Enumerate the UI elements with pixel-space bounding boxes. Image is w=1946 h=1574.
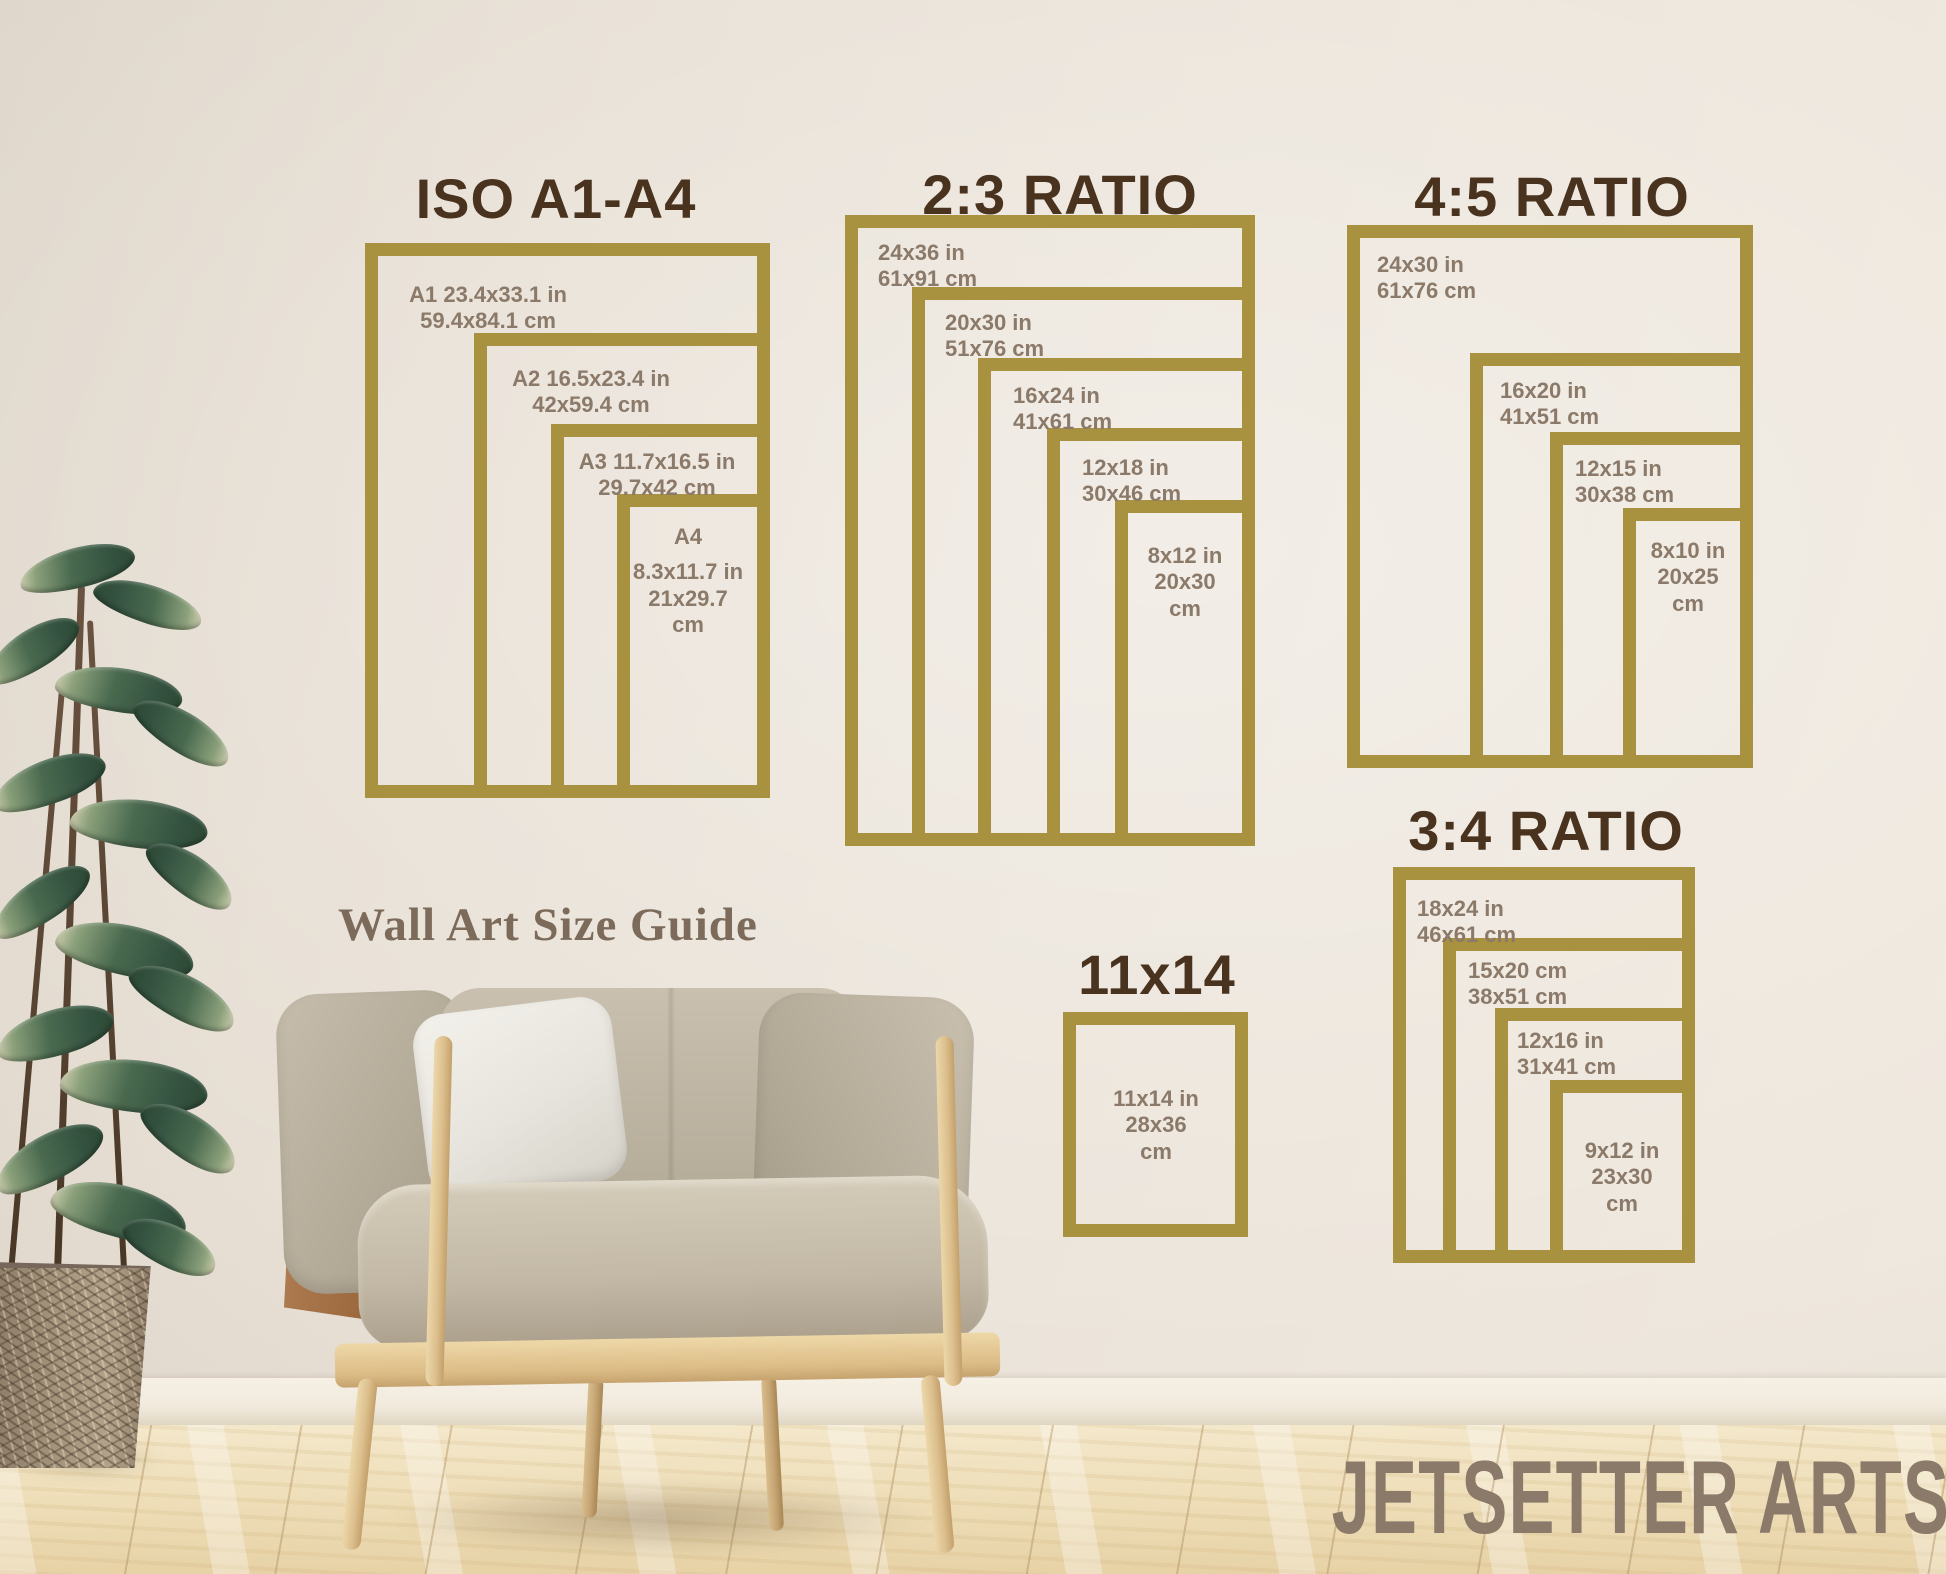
label-line: 12x15 in <box>1575 456 1674 482</box>
label-line: cm <box>1558 591 1818 617</box>
frame-label-12x16: 12x16 in 31x41 cm <box>1517 1028 1616 1081</box>
section-title-4-5: 4:5 RATIO <box>1302 166 1802 228</box>
frame-label-16x20: 16x20 in 41x51 cm <box>1500 378 1599 431</box>
label-line: 15x20 cm <box>1468 958 1567 984</box>
frame-label-a2: A2 16.5x23.4 in 42x59.4 cm <box>461 366 721 419</box>
section-title-11x14: 11x14 <box>907 944 1407 1006</box>
label-line: 20x25 <box>1558 564 1818 590</box>
plant-pot <box>0 1262 154 1468</box>
label-line: 9x12 in <box>1492 1138 1752 1164</box>
chair-shadow <box>290 1468 1030 1568</box>
label-line: 8.3x11.7 in <box>558 559 818 585</box>
frame-label-18x24: 18x24 in 46x61 cm <box>1417 896 1516 949</box>
frame-label-a3: A3 11.7x16.5 in 29.7x42 cm <box>527 449 787 502</box>
frame-label-11x14: 11x14 in 28x36 cm <box>1026 1086 1286 1165</box>
label-line: 41x61 cm <box>1013 409 1112 435</box>
frame-label-a1: A1 23.4x33.1 in 59.4x84.1 cm <box>358 282 618 335</box>
room-scene: Wall Art Size Guide ISO A1-A4 A1 23.4x33… <box>0 0 1946 1574</box>
label-line: 59.4x84.1 cm <box>358 308 618 334</box>
label-line: 16x24 in <box>1013 383 1112 409</box>
frame-label-8x10: 8x10 in 20x25 cm <box>1558 538 1818 617</box>
frame-label-12x18: 12x18 in 30x46 cm <box>1082 455 1181 508</box>
label-line: 29.7x42 cm <box>527 475 787 501</box>
label-line: cm <box>1492 1191 1752 1217</box>
frame-label-15x20: 15x20 cm 38x51 cm <box>1468 958 1567 1011</box>
plant-leaf <box>58 1052 211 1119</box>
label-line: 8x12 in <box>1055 543 1315 569</box>
label-line: 61x91 cm <box>878 266 977 292</box>
label-line: 24x36 in <box>878 240 977 266</box>
label-line: cm <box>1055 596 1315 622</box>
plant-leaf <box>68 793 210 855</box>
frame-label-a4: A4 8.3x11.7 in 21x29.7 cm <box>558 524 818 639</box>
frame-label-24x30: 24x30 in 61x76 cm <box>1377 252 1476 305</box>
label-line: 20x30 in <box>945 310 1044 336</box>
label-line: 61x76 cm <box>1377 278 1476 304</box>
label-line: 51x76 cm <box>945 336 1044 362</box>
frame-label-12x15: 12x15 in 30x38 cm <box>1575 456 1674 509</box>
label-line: A4 <box>558 524 818 550</box>
section-title-iso: ISO A1-A4 <box>306 168 806 230</box>
baseboard <box>0 1378 1946 1425</box>
label-line: 18x24 in <box>1417 896 1516 922</box>
label-line: 38x51 cm <box>1468 984 1567 1010</box>
chair-seat-cushion <box>357 1175 990 1351</box>
label-line: A3 11.7x16.5 in <box>527 449 787 475</box>
label-line: cm <box>1026 1139 1286 1165</box>
label-line: 11x14 in <box>1026 1086 1286 1112</box>
label-line: A2 16.5x23.4 in <box>461 366 721 392</box>
label-line: 41x51 cm <box>1500 404 1599 430</box>
label-line: A1 23.4x33.1 in <box>358 282 618 308</box>
frame-label-8x12: 8x12 in 20x30 cm <box>1055 543 1315 622</box>
label-line: 24x30 in <box>1377 252 1476 278</box>
label-line: 31x41 cm <box>1517 1054 1616 1080</box>
label-line: 8x10 in <box>1558 538 1818 564</box>
frame-label-16x24: 16x24 in 41x61 cm <box>1013 383 1112 436</box>
label-line: 30x46 cm <box>1082 481 1181 507</box>
label-line: 30x38 cm <box>1575 482 1674 508</box>
label-line: 46x61 cm <box>1417 922 1516 948</box>
label-line: 21x29.7 <box>558 586 818 612</box>
frame-label-9x12: 9x12 in 23x30 cm <box>1492 1138 1752 1217</box>
guide-title: Wall Art Size Guide <box>338 898 898 952</box>
label-line: 12x18 in <box>1082 455 1181 481</box>
label-line: 28x36 <box>1026 1112 1286 1138</box>
label-line: 12x16 in <box>1517 1028 1616 1054</box>
frame-label-24x36: 24x36 in 61x91 cm <box>878 240 977 293</box>
label-line: cm <box>558 612 818 638</box>
label-line: 20x30 <box>1055 569 1315 595</box>
label-line: 16x20 in <box>1500 378 1599 404</box>
label-line: 42x59.4 cm <box>461 392 721 418</box>
section-title-3-4: 3:4 RATIO <box>1296 800 1796 862</box>
brand-logo-text: JETSETTER ARTS <box>1331 1446 1946 1550</box>
frame-label-20x30: 20x30 in 51x76 cm <box>945 310 1044 363</box>
label-line: 23x30 <box>1492 1164 1752 1190</box>
